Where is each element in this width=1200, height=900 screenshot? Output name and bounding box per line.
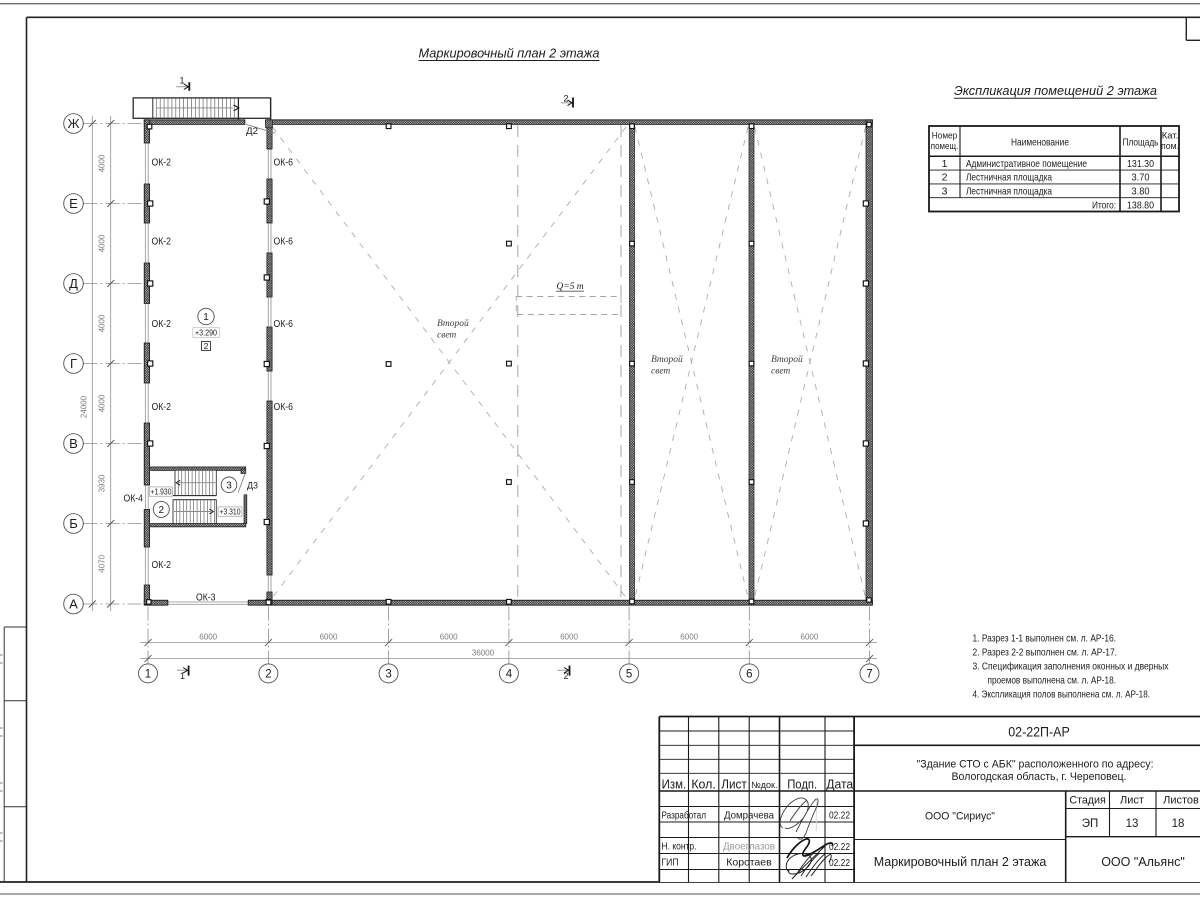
svg-text:2: 2 <box>159 505 165 516</box>
svg-text:№док.: №док. <box>751 780 777 790</box>
svg-text:Q=5 т: Q=5 т <box>556 282 583 292</box>
svg-text:Административное помещение: Административное помещение <box>966 158 1087 170</box>
svg-text:Н. контр.: Н. контр. <box>662 841 697 852</box>
svg-text:4. Экспликация полов выполнена: 4. Экспликация полов выполнена см. л. АР… <box>973 690 1151 701</box>
svg-text:1: 1 <box>145 668 151 680</box>
svg-text:02.22: 02.22 <box>829 810 850 821</box>
svg-text:Разработал: Разработал <box>662 810 707 821</box>
svg-text:2: 2 <box>265 668 271 680</box>
svg-text:3: 3 <box>226 480 232 491</box>
svg-text:4000: 4000 <box>98 314 107 332</box>
svg-text:Маркировочный план 2 этажа: Маркировочный план 2 этажа <box>874 855 1047 869</box>
svg-text:Лестничная площадка: Лестничная площадка <box>966 186 1052 198</box>
svg-text:Наименование: Наименование <box>1011 137 1069 149</box>
svg-text:Дата: Дата <box>826 777 853 791</box>
svg-text:1. Разрез 1-1 выполнен см. л.: 1. Разрез 1-1 выполнен см. л. АР-16. <box>973 634 1117 645</box>
svg-text:Д3: Д3 <box>247 481 258 491</box>
svg-text:ОК-6: ОК-6 <box>274 402 294 413</box>
svg-text:1: 1 <box>180 671 185 681</box>
svg-text:4000: 4000 <box>98 154 107 172</box>
svg-text:6000: 6000 <box>801 633 819 642</box>
svg-text:02.22: 02.22 <box>829 858 850 869</box>
svg-text:Площадь: Площадь <box>1123 137 1159 149</box>
svg-text:Изм.: Изм. <box>662 777 687 791</box>
svg-text:2: 2 <box>563 94 568 104</box>
svg-text:ЭП: ЭП <box>1082 818 1099 830</box>
svg-text:3: 3 <box>385 668 391 680</box>
svg-text:13: 13 <box>1126 818 1139 830</box>
svg-text:Б: Б <box>69 516 78 531</box>
svg-text:131.30: 131.30 <box>1127 158 1154 170</box>
svg-text:Стадия: Стадия <box>1069 795 1106 807</box>
svg-text:2. Разрез 2-2 выполнен см. л.: 2. Разрез 2-2 выполнен см. л. АР-17. <box>973 648 1118 659</box>
svg-text:+3.290: +3.290 <box>195 327 217 337</box>
svg-text:6: 6 <box>746 668 752 680</box>
svg-text:В: В <box>69 436 78 451</box>
svg-text:ГИП: ГИП <box>662 857 679 868</box>
svg-text:проемов выполнена см. л. АР-18: проемов выполнена см. л. АР-18. <box>988 676 1117 687</box>
svg-text:Кат.: Кат. <box>1162 131 1179 142</box>
svg-text:Лестничная площадка: Лестничная площадка <box>966 172 1052 184</box>
svg-text:Двоеглазов: Двоеглазов <box>723 841 776 852</box>
svg-text:2: 2 <box>204 341 209 351</box>
svg-text:36000: 36000 <box>472 649 495 658</box>
svg-text:+3.310: +3.310 <box>220 506 241 516</box>
svg-text:ОК-6: ОК-6 <box>274 158 294 169</box>
svg-text:свет: свет <box>437 331 456 341</box>
svg-text:Второй: Второй <box>771 354 803 365</box>
svg-text:ОК-3: ОК-3 <box>196 593 216 604</box>
svg-text:6000: 6000 <box>560 633 578 642</box>
svg-text:1: 1 <box>203 312 209 323</box>
svg-text:Коротаев: Коротаев <box>726 857 772 868</box>
svg-text:Лист: Лист <box>1120 795 1144 807</box>
svg-text:4070: 4070 <box>98 554 107 572</box>
svg-text:3.80: 3.80 <box>1132 186 1150 198</box>
svg-text:3. Спецификация заполнения око: 3. Спецификация заполнения оконных и две… <box>973 661 1169 673</box>
svg-text:Кол.: Кол. <box>691 777 716 791</box>
svg-text:Итого:: Итого: <box>1092 199 1116 211</box>
svg-text:ОК-2: ОК-2 <box>152 319 172 330</box>
svg-text:138.80: 138.80 <box>1127 199 1154 211</box>
svg-text:6000: 6000 <box>440 633 458 642</box>
svg-text:2: 2 <box>942 172 948 184</box>
svg-text:ОК-6: ОК-6 <box>274 319 294 330</box>
svg-text:4000: 4000 <box>98 234 107 252</box>
svg-text:3930: 3930 <box>98 474 107 492</box>
svg-text:А: А <box>69 597 78 612</box>
svg-text:02-22П-АР: 02-22П-АР <box>1008 724 1070 739</box>
svg-text:Ж: Ж <box>67 116 79 131</box>
svg-text:7: 7 <box>866 668 872 680</box>
svg-text:+1.930: +1.930 <box>151 486 172 496</box>
svg-text:ОК-4: ОК-4 <box>124 494 144 505</box>
svg-text:Подп.: Подп. <box>787 777 817 791</box>
svg-text:5: 5 <box>626 668 632 680</box>
svg-text:Г: Г <box>70 356 77 371</box>
svg-text:свет: свет <box>771 367 790 377</box>
svg-text:Номер: Номер <box>932 131 958 142</box>
svg-text:Лист: Лист <box>721 777 747 791</box>
svg-text:1: 1 <box>179 76 184 86</box>
svg-text:ООО "Альянс": ООО "Альянс" <box>1101 855 1185 869</box>
svg-text:3: 3 <box>942 186 948 198</box>
svg-text:ОК-2: ОК-2 <box>152 158 172 169</box>
svg-text:4: 4 <box>506 668 513 680</box>
svg-text:Экспликация помещений 2 этажа: Экспликация помещений 2 этажа <box>954 83 1157 98</box>
svg-text:Маркировочный план 2 этажа: Маркировочный план 2 этажа <box>419 46 600 61</box>
svg-text:18: 18 <box>1172 818 1185 830</box>
svg-text:"Здание СТО с АБК" расположенн: "Здание СТО с АБК" расположенного по адр… <box>917 758 1154 770</box>
svg-text:6000: 6000 <box>199 633 217 642</box>
svg-text:ООО "Сириус": ООО "Сириус" <box>925 811 995 823</box>
svg-text:Вологодская область, г. Черепо: Вологодская область, г. Череповец. <box>952 771 1127 783</box>
svg-text:пом.: пом. <box>1161 141 1179 152</box>
svg-text:6000: 6000 <box>680 633 698 642</box>
svg-text:2: 2 <box>563 671 568 681</box>
svg-text:Домрачева: Домрачева <box>724 810 774 821</box>
svg-text:4000: 4000 <box>98 394 107 412</box>
svg-text:ОК-2: ОК-2 <box>152 560 172 571</box>
svg-text:Листов: Листов <box>1163 795 1199 807</box>
svg-text:3.70: 3.70 <box>1132 172 1150 184</box>
svg-text:помещ.: помещ. <box>931 141 959 152</box>
svg-text:Второй: Второй <box>651 354 683 365</box>
svg-text:ОК-2: ОК-2 <box>152 402 172 413</box>
svg-text:свет: свет <box>651 367 670 377</box>
svg-text:Д2: Д2 <box>246 126 258 136</box>
svg-text:ОК-2: ОК-2 <box>152 237 172 248</box>
svg-text:6000: 6000 <box>320 633 338 642</box>
svg-text:1: 1 <box>942 158 948 170</box>
svg-text:24000: 24000 <box>80 395 89 418</box>
svg-text:Д: Д <box>69 276 78 291</box>
svg-text:Е: Е <box>69 196 78 211</box>
svg-text:ОК-6: ОК-6 <box>274 237 294 248</box>
svg-text:Второй: Второй <box>437 318 469 329</box>
